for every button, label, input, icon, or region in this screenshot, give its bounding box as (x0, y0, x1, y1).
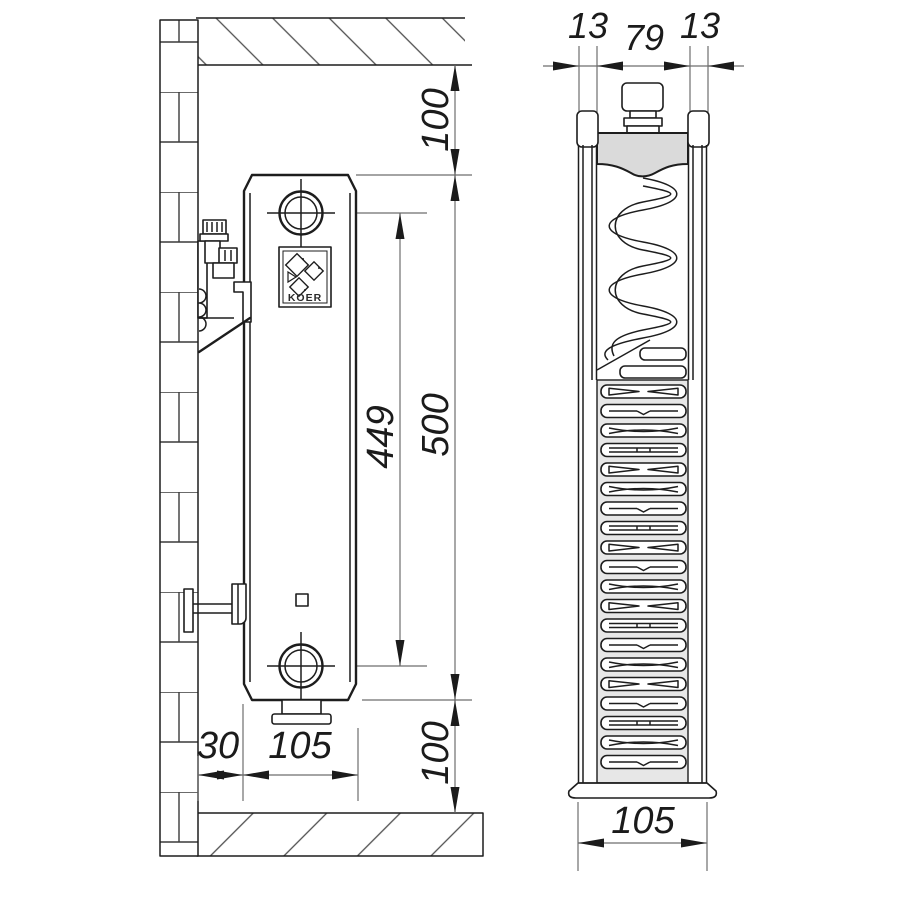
dim-floor-offset: 100 (415, 721, 457, 784)
dim-height: 500 (415, 393, 457, 456)
lower-wall-bracket (184, 584, 246, 632)
dim-panel-right: 13 (680, 5, 720, 46)
floor-section (197, 813, 483, 856)
koer-logo: KOER (279, 247, 331, 307)
convector-fins (597, 178, 686, 378)
grille-panel (597, 380, 688, 783)
dim-core-width: 79 (624, 17, 664, 58)
dim-ceiling-offset: 100 (415, 88, 457, 151)
radiator-section-view: 13 79 13 105 (543, 5, 744, 871)
dim-depth-section: 105 (611, 800, 675, 842)
dim-depth-side: 105 (268, 725, 332, 767)
dim-port-spacing: 449 (360, 405, 402, 468)
ceiling-section (196, 18, 472, 65)
dim-panel-left: 13 (568, 5, 608, 46)
header-block (597, 133, 688, 176)
radiator-side-view: KOER (244, 175, 356, 724)
brick-wall (160, 20, 198, 856)
left-panel (577, 111, 598, 783)
logo-text: KOER (288, 292, 322, 304)
technical-drawing-canvas: KOER (0, 0, 900, 900)
right-panel (688, 111, 709, 783)
base-plate (569, 783, 717, 798)
dim-wall-gap: 30 (197, 725, 239, 767)
radiator-installation-drawing: KOER (0, 0, 900, 900)
bottom-foot (272, 700, 331, 724)
vent-plug (296, 594, 308, 606)
air-vent-valve (622, 83, 663, 134)
